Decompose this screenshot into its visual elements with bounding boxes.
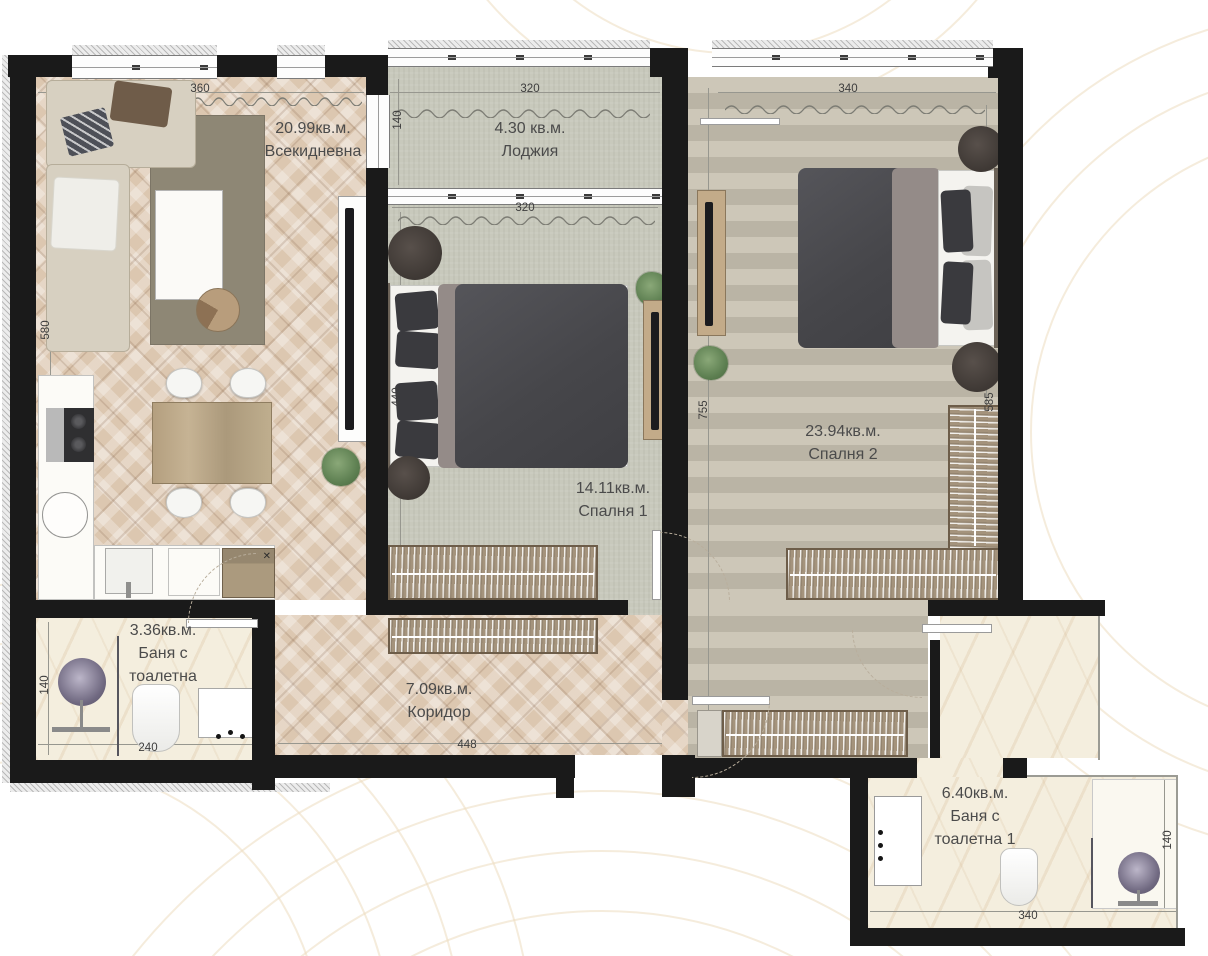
floor-plan-page: ✕ [0,0,1208,956]
insulation-strip [10,783,330,792]
room-name: Лоджия [495,140,566,163]
plant-bedroom2 [694,346,728,380]
room-label-corridor: 7.09кв.м. Коридор [406,678,473,724]
window-loggia [388,48,650,67]
room-area: 20.99кв.м. [265,117,362,140]
wardrobe-rail [392,636,594,638]
thin-boundary [1176,777,1178,928]
thin-boundary [1027,775,1178,777]
dim-living-top: 360 [190,83,209,95]
room-label-bedroom1: 14.11кв.м. Спалня 1 [576,477,650,523]
dim-loggia-bottom: 320 [515,202,534,214]
wall [217,55,277,77]
sofa-pillow [109,80,172,128]
dim-bath-bottom: 240 [138,742,157,754]
wall-bath1-left [850,758,868,946]
room-name: Спалня 2 [805,443,880,466]
wardrobe-rail [392,573,594,575]
shower-glass-bathroom1 [1091,838,1093,908]
bed2-side-table [952,342,1002,392]
door-handle-dot [878,856,883,861]
tv-bedroom2 [705,202,713,326]
coffee-table [155,190,223,300]
shower-stand [80,700,83,730]
room-area: 4.30 кв.м. [495,117,566,140]
bed2-pillow [940,261,973,324]
room-name: Баня с [934,805,1015,828]
insulation-strip [712,40,993,48]
room-area: 7.09кв.м. [406,678,473,701]
door-handle-dot [878,830,883,835]
wardrobe-rail [974,409,976,546]
radiator-squiggle [398,213,655,225]
room-label-living: 20.99кв.м. Всекидневна [265,117,362,163]
bed2-pillow [940,189,973,252]
wall-bathroom-bottom [10,760,275,783]
wardrobe-bedroom2-right [948,405,1000,550]
wardrobe-bedroom1 [388,545,598,600]
shower-base [52,727,110,732]
floor-bathroom1-doorway [917,758,1003,778]
shower-glass-divider [117,636,119,756]
shower-head-bathroom [58,658,106,706]
bed2-folded-blanket [892,168,940,348]
room-label-bedroom2: 23.94кв.м. Спалня 2 [805,420,880,466]
door-bathroom1 [874,796,922,886]
wall [10,55,36,783]
wall-bath1-bottom [850,928,1185,946]
cooktop-burner [71,437,86,452]
dining-chair [166,368,202,398]
wall-step [556,778,574,798]
wall [998,55,1023,616]
wall-piece [1003,758,1027,778]
dining-chair [230,488,266,518]
insulation-strip [2,55,10,783]
insulation-strip [277,45,325,55]
tv-living [345,208,354,430]
room-label-bath1: 6.40кв.м. Баня с тоалетна 1 [934,782,1015,851]
faucet-dot [240,734,245,739]
room-name: Коридор [406,701,473,724]
room-area: 23.94кв.м. [805,420,880,443]
dim-loggia-left: 140 [392,110,404,129]
faucet-dot [216,734,221,739]
dining-table [152,402,272,484]
bed1-pouf [388,226,442,280]
bed1-pillow [394,290,439,332]
insulation-strip [388,40,650,48]
door-handle-dot [878,843,883,848]
window-living-2 [277,55,325,79]
toilet-bathroom1 [1000,848,1038,906]
wall-living-bedroom1 [366,168,388,615]
window-bedroom2 [712,48,993,67]
dim-bath1-bottom: 340 [1018,910,1037,922]
room-area: 14.11кв.м. [576,477,650,500]
room-name: тоалетна 1 [934,828,1015,851]
faucet-dot [228,730,233,735]
dim-bedroom2-left: 755 [698,400,710,419]
room-area: 6.40кв.м. [934,782,1015,805]
wall-living-loggia [366,55,388,95]
room-name: Всекидневна [265,140,362,163]
dim-bedroom2-top: 340 [838,83,857,95]
thin-boundary [1098,616,1100,760]
dim-corridor-bottom: 448 [457,739,476,751]
cooktop-side-panel [46,408,64,462]
slider-living-loggia [366,95,390,168]
room-area: 3.36кв.м. [129,619,197,642]
dim-loggia-top: 320 [520,83,539,95]
dining-chair [230,368,266,398]
apartment-floor-plan: ✕ [0,0,1208,956]
bed1-pouf [386,456,430,500]
bed1-pillow [395,420,442,460]
dim-bath1-right: 140 [1162,830,1174,849]
sink-faucet [126,582,131,598]
wall-corridor-bottom [252,755,575,778]
room-label-bath: 3.36кв.м. Баня с тоалетна [129,619,197,688]
sofa-throw-blanket [50,176,120,251]
dining-chair [166,488,202,518]
shower-head-bathroom1 [1118,852,1160,894]
bed1-pillow [395,331,441,370]
plant-living [322,448,360,486]
dim-bath-left: 140 [39,675,51,694]
bed1-blanket [455,284,628,468]
shower-base-bathroom1 [1118,901,1158,906]
kitchen-round-sink [42,492,88,538]
dim-living-left: 580 [40,320,52,339]
cooktop-burner [71,414,86,429]
dimension-line [398,79,399,185]
shelf-bedroom2 [700,118,780,125]
wardrobe-corridor [388,618,598,654]
room-name: тоалетна [129,665,197,688]
room-name: Спалня 1 [576,500,650,523]
window-living-1 [72,55,217,79]
side-table [196,288,240,332]
room-name: Баня с [129,642,197,665]
tv-bedroom1 [651,312,659,430]
insulation-strip [72,45,217,55]
radiator-squiggle [725,102,985,114]
dim-bedroom1-left: 440 [391,387,403,406]
dim-bedroom2-right: 585 [984,392,996,411]
room-label-loggia: 4.30 кв.м. Лоджия [495,117,566,163]
